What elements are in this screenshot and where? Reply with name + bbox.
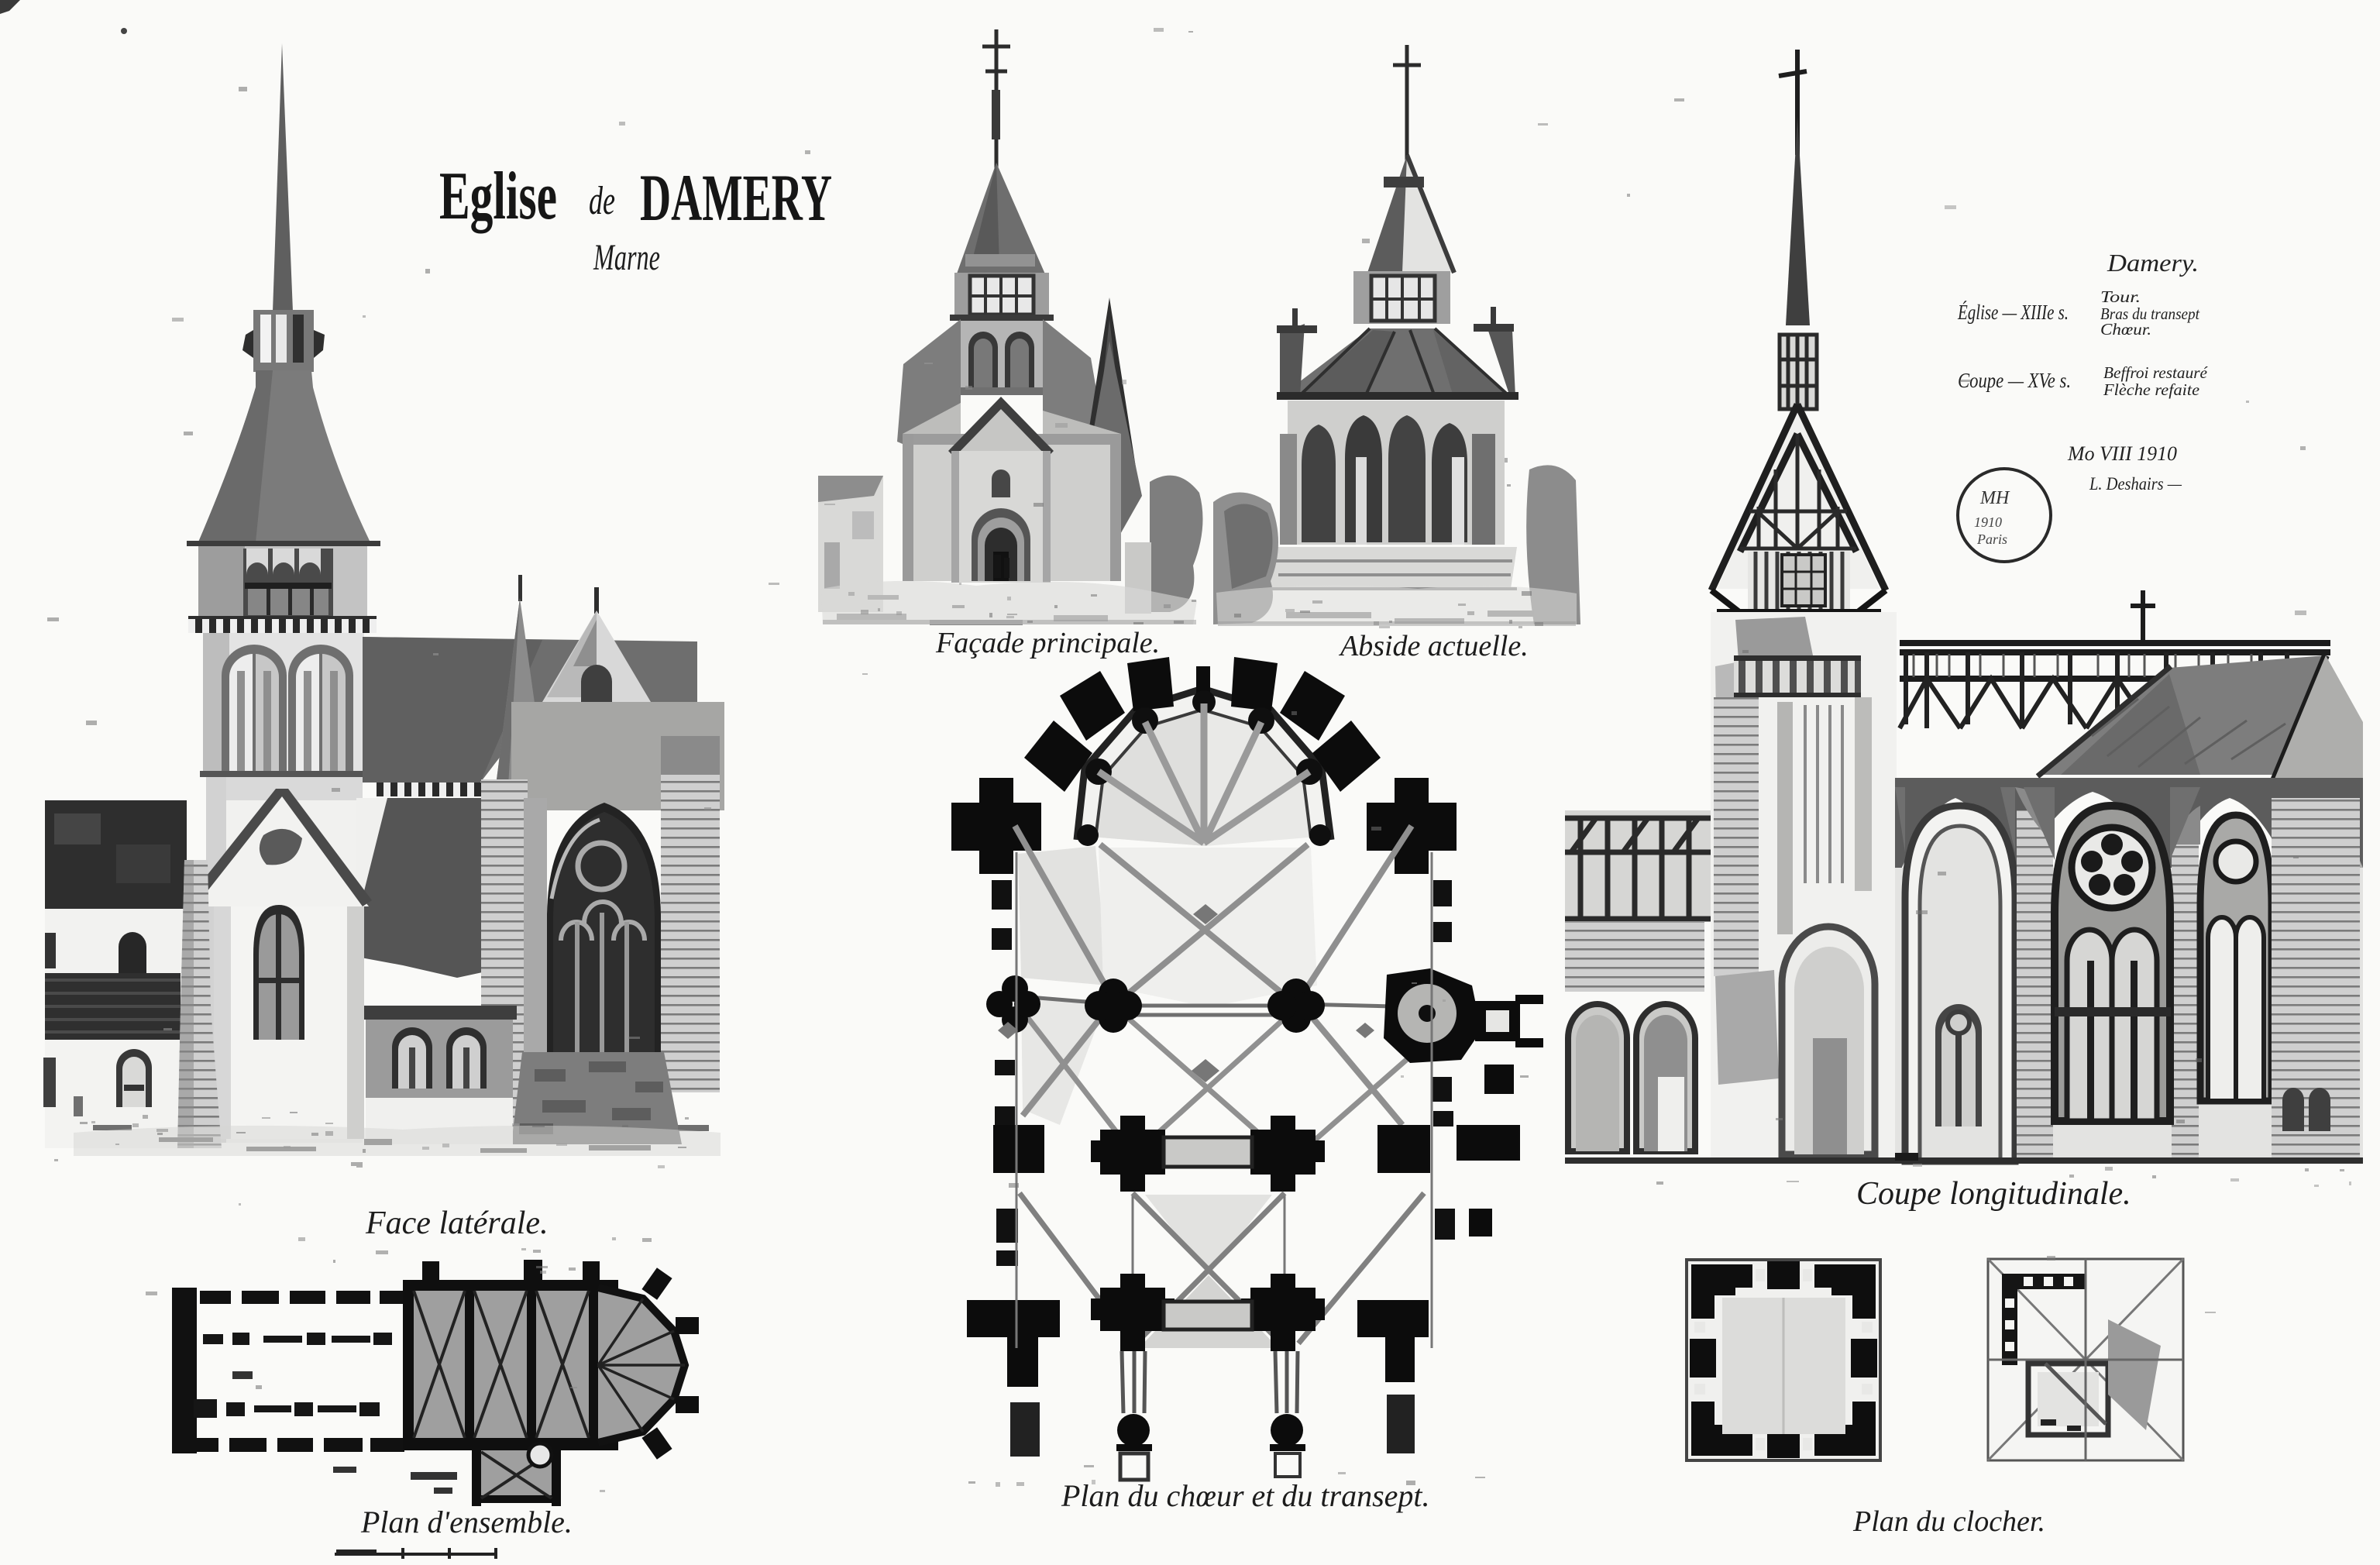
svg-text:L. Deshairs —: L. Deshairs — xyxy=(2089,474,2182,494)
svg-text:MH: MH xyxy=(1979,488,2010,508)
svg-text:Chœur.: Chœur. xyxy=(2100,320,2151,339)
svg-text:1910: 1910 xyxy=(1974,514,2002,530)
svg-text:Coupe — XVe s.: Coupe — XVe s. xyxy=(1958,369,2071,392)
svg-text:Plan d'ensemble.: Plan d'ensemble. xyxy=(360,1505,573,1539)
svg-text:Tour.: Tour. xyxy=(2100,287,2141,306)
svg-text:Beffroi restauré: Beffroi restauré xyxy=(2103,363,2209,382)
svg-text:Coupe longitudinale.: Coupe longitudinale. xyxy=(1856,1176,2131,1212)
svg-text:Abside actuelle.: Abside actuelle. xyxy=(1338,630,1529,662)
svg-text:Église — XIIIe s.: Église — XIIIe s. xyxy=(1957,301,2069,324)
svg-text:DAMERY: DAMERY xyxy=(640,160,832,235)
svg-text:Paris: Paris xyxy=(1976,531,2007,547)
svg-text:Eglise: Eglise xyxy=(439,159,557,234)
svg-text:de: de xyxy=(589,179,615,223)
svg-text:Damery.: Damery. xyxy=(2107,249,2199,277)
svg-text:Flèche refaite: Flèche refaite xyxy=(2103,380,2199,399)
svg-text:Plan du chœur et du transept.: Plan du chœur et du transept. xyxy=(1061,1478,1430,1513)
svg-text:Façade principale.: Façade principale. xyxy=(935,627,1160,659)
svg-text:Mo VIII 1910: Mo VIII 1910 xyxy=(2067,442,2177,465)
svg-text:Marne: Marne xyxy=(593,237,660,278)
svg-text:Plan du clocher.: Plan du clocher. xyxy=(1852,1505,2045,1538)
svg-text:Face latérale.: Face latérale. xyxy=(365,1206,549,1241)
